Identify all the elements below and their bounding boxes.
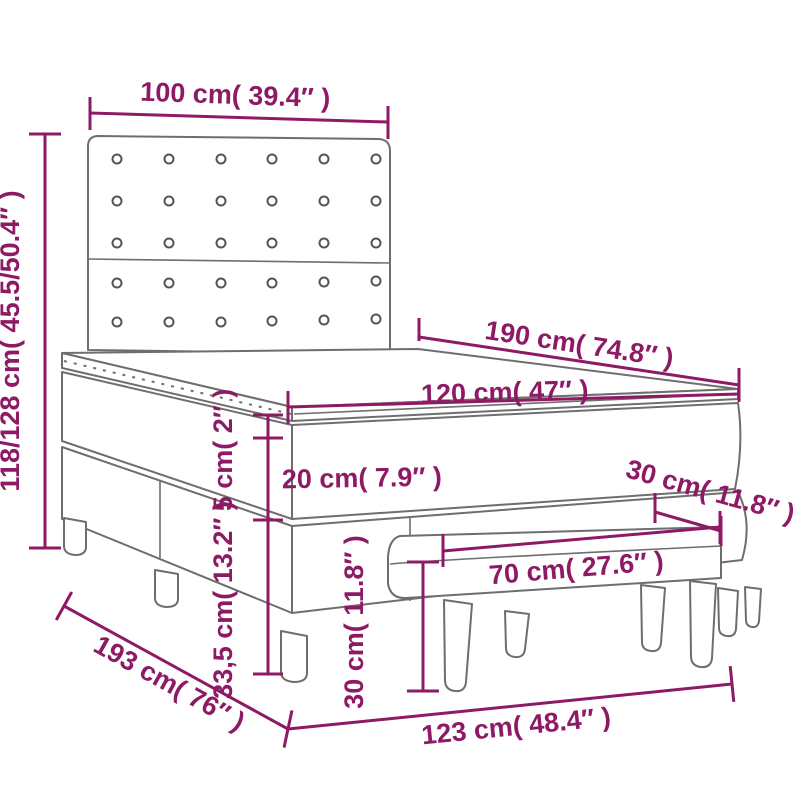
tufting-button: [372, 277, 381, 286]
tufting-button: [268, 279, 277, 288]
dim-tick: [730, 666, 734, 702]
tufting-button: [268, 155, 277, 164]
tufting-button: [372, 239, 381, 248]
bed-leg: [155, 570, 178, 607]
tufting-button: [372, 155, 381, 164]
tufting-button: [268, 197, 277, 206]
dim-tick: [56, 592, 72, 620]
bed-leg: [745, 587, 761, 627]
dim-label-total-height: 118/128 cm( 45.5/50.4″ ): [0, 190, 25, 491]
tufting-button: [268, 317, 277, 326]
tufting-button: [165, 197, 174, 206]
tufting-button: [217, 279, 226, 288]
diagram-canvas: 100 cm( 39.4″ ) 118/128 cm( 45.5/50.4″ )…: [0, 0, 800, 800]
dim-label-bed-width: 120 cm( 47″ ): [421, 375, 589, 410]
bench-leg-rear: [505, 611, 529, 657]
dim-label-mattress-height: 20 cm( 7.9″ ): [282, 462, 443, 495]
tufting-button: [320, 155, 329, 164]
bed-leg: [64, 518, 86, 555]
tufting-button: [165, 318, 174, 327]
tufting-button: [268, 239, 277, 248]
bench-leg-front: [690, 581, 716, 667]
tufting-button: [320, 197, 329, 206]
tufting-button: [217, 318, 226, 327]
headboard-panel: [88, 136, 390, 354]
dim-label-floor-width: 123 cm( 48.4″ ): [420, 702, 612, 751]
tufting-button: [113, 155, 122, 164]
dim-label-topper-height: 5 cm( 2″ ): [208, 389, 238, 511]
dim-headboard-width: 100 cm( 39.4″ ): [90, 77, 388, 139]
tufting-button: [217, 197, 226, 206]
dim-line: [90, 113, 388, 122]
tufting-button: [320, 278, 329, 287]
dim-floor-length: 193 cm( 76″ ): [56, 592, 292, 748]
bench: [388, 527, 721, 691]
dim-line: [64, 606, 288, 729]
tufting-button: [320, 316, 329, 325]
tufting-button: [113, 279, 122, 288]
tufting-button: [165, 279, 174, 288]
tufting-button: [372, 315, 381, 324]
bed-dimension-diagram: 100 cm( 39.4″ ) 118/128 cm( 45.5/50.4″ )…: [0, 0, 800, 800]
bench-leg-rear: [641, 585, 665, 651]
dim-total-height: 118/128 cm( 45.5/50.4″ ): [0, 134, 61, 548]
tufting-button: [165, 155, 174, 164]
tufting-button: [113, 318, 122, 327]
dim-label-base-height: 33,5 cm( 13.2″ ): [208, 501, 238, 699]
dim-label-headboard-width: 100 cm( 39.4″ ): [140, 77, 331, 114]
tufting-button: [320, 239, 329, 248]
tufting-button: [372, 197, 381, 206]
tufting-button: [217, 155, 226, 164]
dim-label-bench-height: 30 cm( 11.8″ ): [339, 535, 369, 709]
bed-leg: [281, 631, 307, 682]
tufting-button: [113, 239, 122, 248]
tufting-button: [165, 239, 174, 248]
tufting-button: [217, 239, 226, 248]
tufting-button: [113, 197, 122, 206]
bench-leg-front: [444, 600, 472, 691]
headboard: [88, 136, 390, 354]
bed-leg: [718, 588, 738, 636]
